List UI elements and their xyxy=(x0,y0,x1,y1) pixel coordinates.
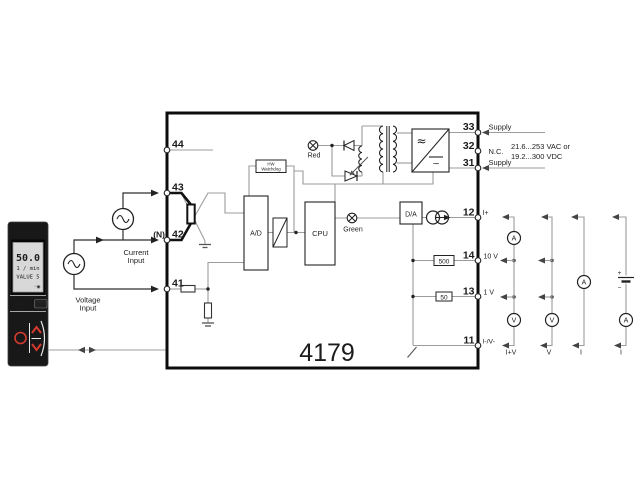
terminal-32-number: 32 xyxy=(463,140,475,152)
comm-left-arrow-icon xyxy=(78,347,85,353)
output-chains-wiring xyxy=(505,217,626,346)
battery-minus-label: − xyxy=(618,285,622,292)
terminal-14-pin xyxy=(475,258,481,264)
ammeter-label: A xyxy=(582,280,587,287)
mode-label-iv: I+V xyxy=(506,350,517,357)
terminal-44-number: 44 xyxy=(172,139,184,151)
brand-logo: PR xyxy=(14,303,23,309)
resistor-500-label: 500 xyxy=(439,258,450,265)
chain-arrow-icon xyxy=(614,343,621,349)
arrow-to-43-icon xyxy=(151,190,159,197)
voltage-range-1: 21.6...253 VAC or xyxy=(511,142,571,151)
mode-label-i2: I xyxy=(620,350,622,357)
voltage-range-2: 19.2...300 VDC xyxy=(511,152,563,161)
psu-ac-symbol: ≈ xyxy=(416,134,426,148)
wiring-diagram-canvas: 50.0 1 / min VALUE 5 ◦◉ PR 4510 xyxy=(0,0,640,480)
chain-arrow-icon xyxy=(500,294,507,300)
chain-arrow-icon xyxy=(500,258,507,264)
junction-dot xyxy=(330,144,333,147)
adc-label: A/D xyxy=(250,231,262,238)
red-led-label: Red xyxy=(308,153,321,160)
i-plus-label: I+ xyxy=(483,210,489,217)
display-status-icons: ◦◉ xyxy=(34,285,41,290)
terminal-43-pin xyxy=(164,190,170,196)
chain-arrow-icon xyxy=(502,214,509,220)
current-input-label-2: Input xyxy=(128,256,146,265)
ammeter-label: A xyxy=(624,318,629,325)
neutral-mark: (N) xyxy=(153,230,165,240)
terminal-12-number: 12 xyxy=(463,207,475,219)
voltmeter-label: V xyxy=(550,318,555,325)
display-unit: 1 / min xyxy=(16,266,39,272)
terminal-11-pin xyxy=(475,343,481,349)
v10-label: 10 V xyxy=(484,254,499,261)
chain-arrow-icon xyxy=(540,343,547,349)
front-display-unit: 50.0 1 / min VALUE 5 ◦◉ PR 4510 xyxy=(8,222,48,366)
terminal-13-pin xyxy=(475,294,481,300)
terminal-42-pin xyxy=(164,237,170,243)
chain-arrow-icon xyxy=(572,343,579,349)
terminal-33-number: 33 xyxy=(463,121,475,133)
terminal-32-pin xyxy=(475,148,481,154)
arrow-to-41-icon xyxy=(151,286,159,293)
display-value: 50.0 xyxy=(16,253,40,264)
junction-dot xyxy=(411,295,414,298)
supply-31-label: Supply xyxy=(489,158,512,167)
terminal-12-pin xyxy=(475,215,481,221)
terminal-42-number: 42 xyxy=(172,229,184,241)
product-number: 4179 xyxy=(299,339,355,367)
terminal-31-pin xyxy=(475,165,481,171)
nc-label: N.C. xyxy=(489,147,504,156)
terminal-33-pin xyxy=(475,130,481,136)
watchdog-label-2: Watchdog xyxy=(261,167,281,172)
supply-labels: Supply N.C. 21.6...253 VAC or 19.2...300… xyxy=(482,123,571,172)
terminal-44-pin xyxy=(164,147,170,153)
ammeter-label: A xyxy=(512,236,517,243)
junction-dot xyxy=(294,231,297,234)
supply-33-label: Supply xyxy=(489,123,512,132)
voltage-input-label-2: Input xyxy=(80,304,98,313)
power-supply-block: ≈ ~ xyxy=(412,129,449,172)
dac-label: D/A xyxy=(405,212,417,219)
psu-dc-symbol: ~ xyxy=(432,160,440,170)
supply-33-arrow-icon xyxy=(482,130,489,136)
terminal-31-number: 31 xyxy=(463,157,475,169)
schematic-page: 50.0 1 / min VALUE 5 ◦◉ PR 4510 xyxy=(0,0,640,480)
chain-arrow-icon xyxy=(502,343,509,349)
chain-arrow-icon xyxy=(538,258,545,264)
terminal-14-number: 14 xyxy=(463,250,475,262)
terminal-13-number: 13 xyxy=(463,286,475,298)
output-mode-labels: I+V V I I xyxy=(506,350,622,357)
chain-arrow-icon xyxy=(538,294,545,300)
junction-dot xyxy=(206,287,209,290)
terminal-41-number: 41 xyxy=(172,278,184,290)
resistor-50-label: 50 xyxy=(440,294,448,301)
terminal-43-number: 43 xyxy=(172,182,184,194)
output-terminal-labels: I+ 10 V 1 V I-/V- xyxy=(483,210,499,346)
chain-arrow-icon xyxy=(612,214,619,220)
chain-arrow-icon xyxy=(571,214,578,220)
i-minus-label: I-/V- xyxy=(483,339,495,346)
shunt-resistor-icon xyxy=(187,205,194,224)
source-wires xyxy=(74,193,152,289)
arrow-mid-42-icon xyxy=(96,237,104,244)
mode-label-i1: I xyxy=(580,350,582,357)
supply-31-arrow-icon xyxy=(482,165,489,171)
model-number: 4510 xyxy=(36,302,46,307)
junction-dot xyxy=(411,259,414,262)
comm-right-arrow-icon xyxy=(89,347,96,353)
v1-label: 1 V xyxy=(484,290,495,297)
input-sources: Current Input Voltage Input xyxy=(64,190,160,313)
battery-plus-label: + xyxy=(618,270,622,277)
mode-label-v: V xyxy=(547,350,552,357)
voltmeter-label: V xyxy=(512,318,517,325)
green-led-label: Green xyxy=(343,227,363,234)
terminal-41-pin xyxy=(164,286,170,292)
display-tag: VALUE 5 xyxy=(16,275,39,281)
meters: A V V A A + − xyxy=(508,232,635,327)
cpu-label: CPU xyxy=(312,229,328,238)
resistor-41-shunt-icon xyxy=(205,303,212,318)
terminal-11-number: 11 xyxy=(463,335,474,347)
chain-arrow-icon xyxy=(541,214,548,220)
